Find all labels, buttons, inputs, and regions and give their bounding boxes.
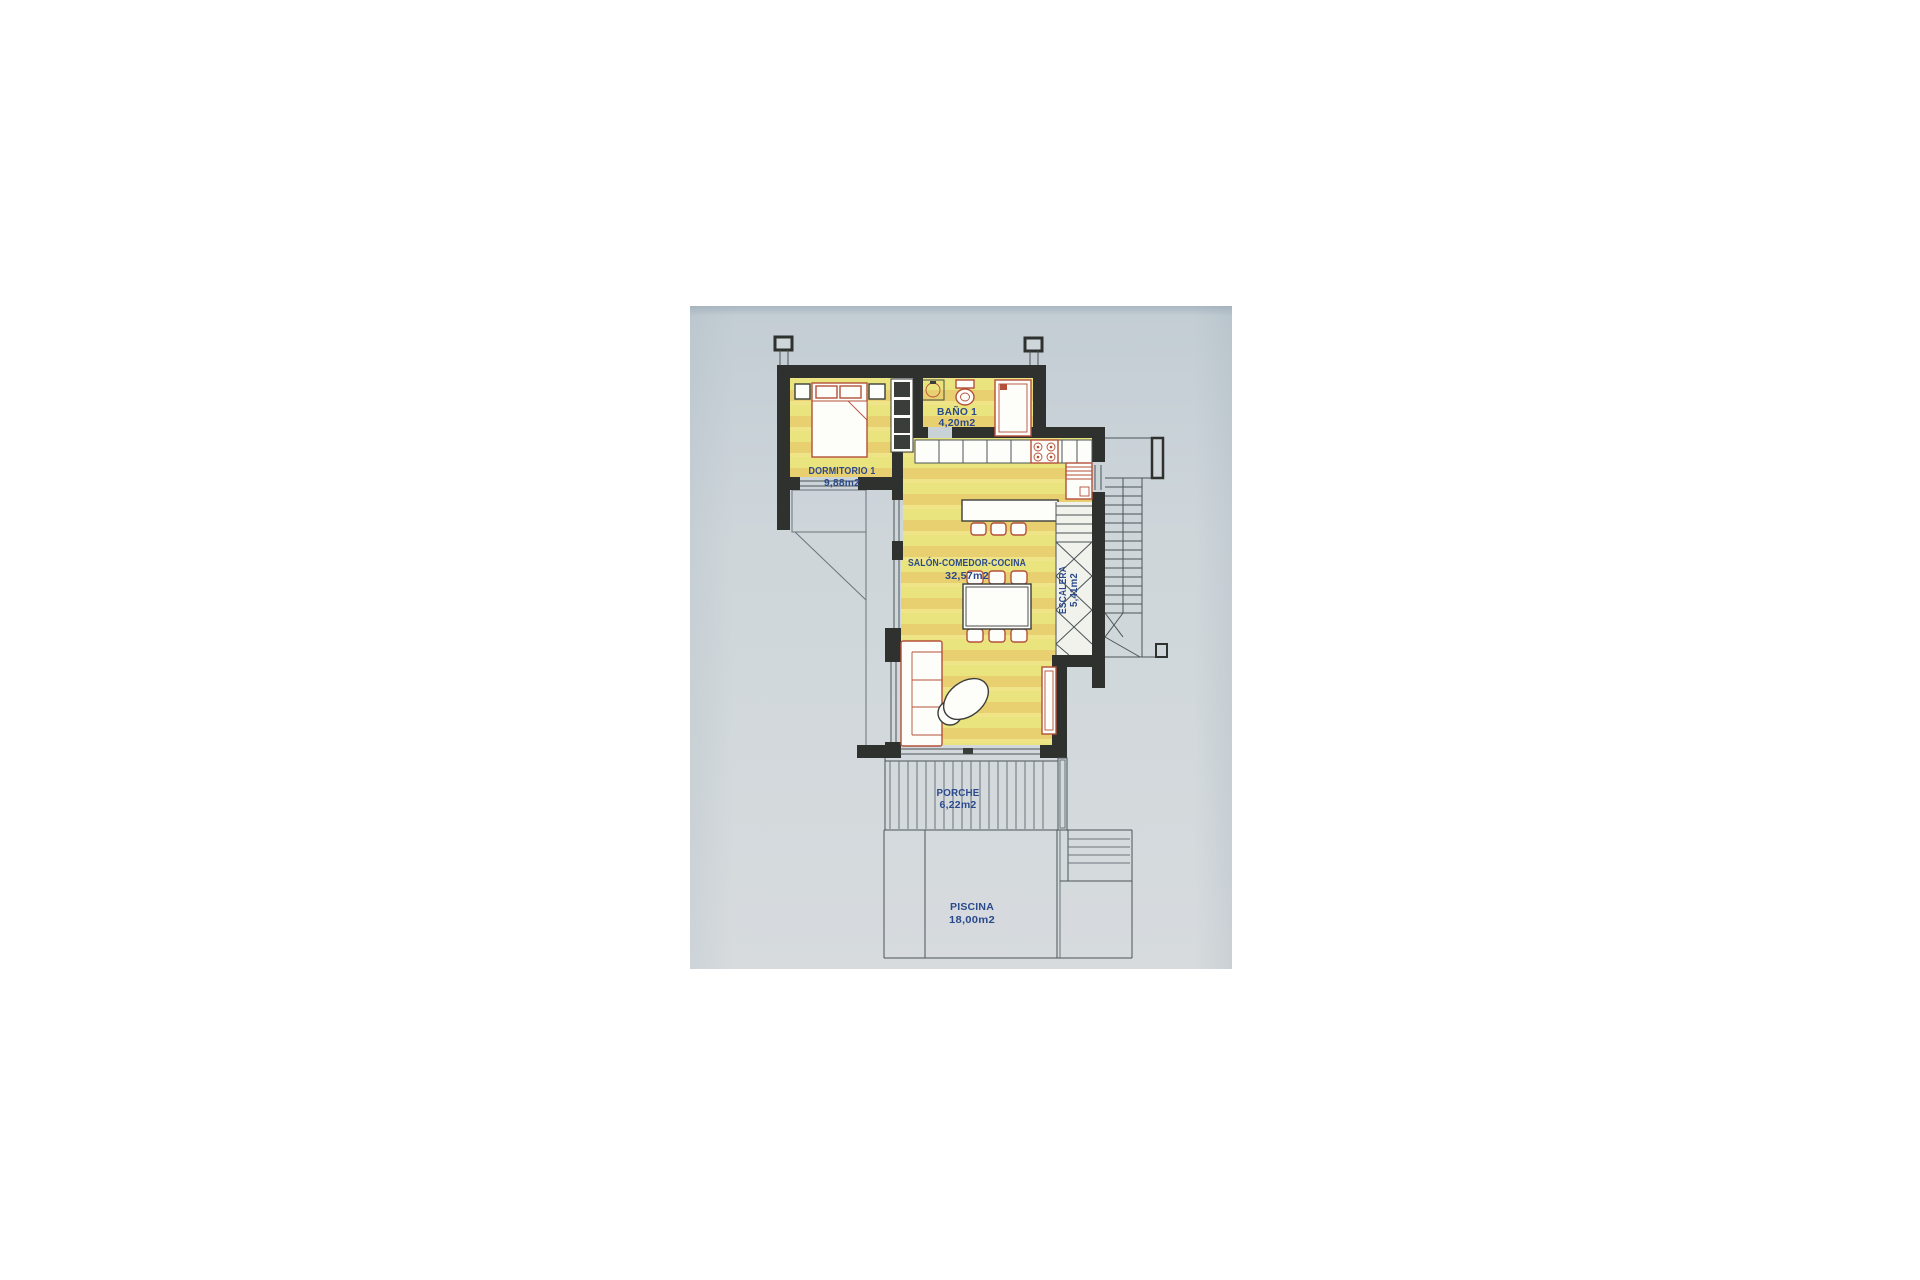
label-dormitorio-name: DORMITORIO 1 bbox=[809, 465, 876, 477]
label-porche-area: 6,22m2 bbox=[940, 799, 977, 811]
slider-handle bbox=[963, 748, 973, 754]
label-escalera-area: 5,41m2 bbox=[1069, 573, 1080, 607]
wardrobe bbox=[891, 379, 913, 452]
sofa bbox=[901, 641, 942, 746]
kitchen-counter bbox=[915, 440, 1092, 463]
nightstand-right bbox=[869, 384, 885, 399]
stair-pillar-top bbox=[1152, 438, 1163, 478]
toilet bbox=[956, 380, 974, 405]
stove bbox=[1031, 440, 1058, 463]
bed bbox=[812, 383, 867, 457]
label-porche-name: PORCHE bbox=[937, 787, 980, 799]
label-salon-area: 32,57m2 bbox=[945, 570, 989, 582]
kitchen-island bbox=[962, 500, 1058, 521]
label-piscina-name: PISCINA bbox=[950, 901, 994, 913]
bar-stools bbox=[971, 523, 1026, 535]
label-salon-name: SALÓN-COMEDOR-COCINA bbox=[908, 556, 1026, 569]
tv-sideboard bbox=[1042, 667, 1056, 734]
floor-plan-svg: DORMITORIO 1 9,88m2 BAÑO 1 4,20m2 SALÓN-… bbox=[0, 0, 1920, 1280]
scanned-floor-plan-page: DORMITORIO 1 9,88m2 BAÑO 1 4,20m2 SALÓN-… bbox=[0, 0, 1920, 1280]
shower bbox=[995, 380, 1031, 436]
fridge bbox=[1066, 463, 1092, 499]
label-dormitorio-area: 9,88m2 bbox=[824, 477, 860, 489]
label-escalera-name: ESCALERA bbox=[1058, 566, 1069, 614]
stair-pillar-bottom bbox=[1156, 644, 1167, 657]
nightstand-left bbox=[795, 384, 810, 399]
dining-table bbox=[963, 584, 1031, 629]
label-escalera-group: ESCALERA 5,41m2 bbox=[1058, 566, 1080, 614]
label-piscina-area: 18,00m2 bbox=[949, 914, 995, 926]
label-bano-area: 4,20m2 bbox=[939, 417, 976, 429]
